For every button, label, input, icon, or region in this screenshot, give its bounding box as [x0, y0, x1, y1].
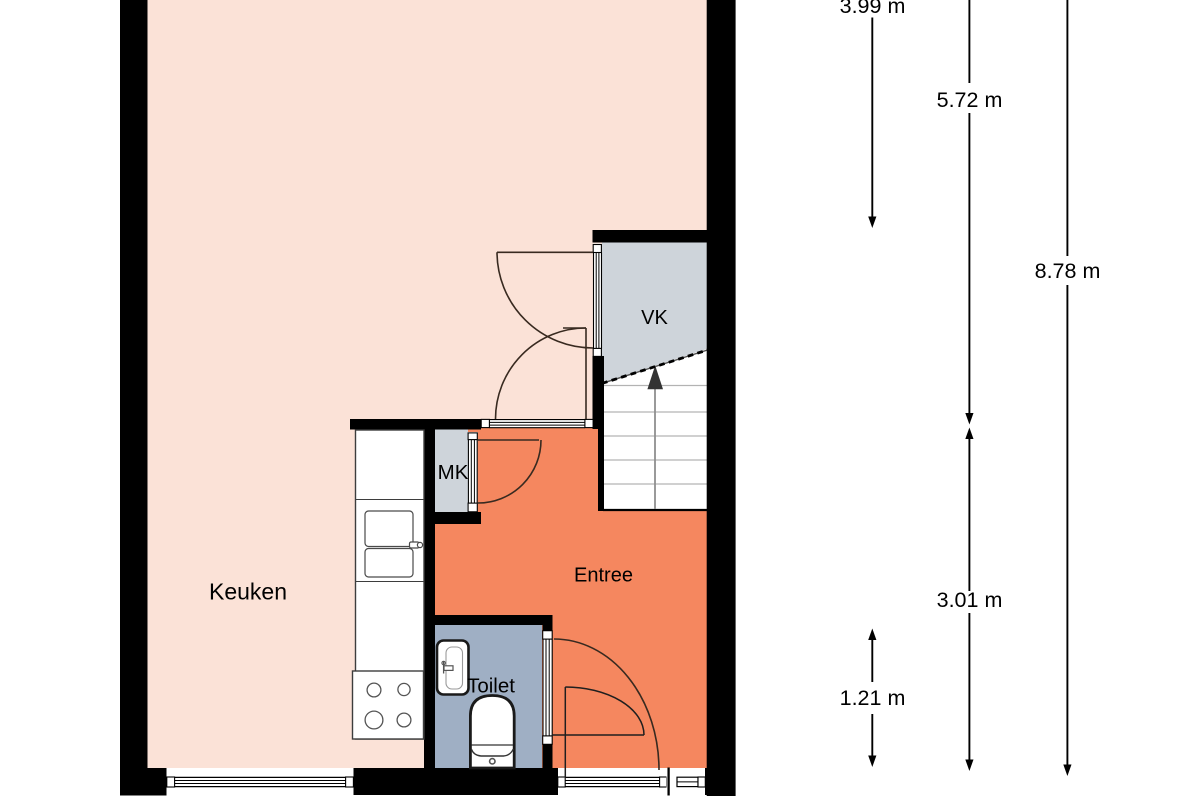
- svg-text:Entree: Entree: [574, 565, 633, 587]
- svg-text:Keuken: Keuken: [209, 579, 287, 605]
- svg-text:VK: VK: [641, 307, 668, 329]
- svg-text:8.78 m: 8.78 m: [1035, 259, 1101, 283]
- svg-text:5.72 m: 5.72 m: [937, 88, 1003, 112]
- svg-text:Toilet: Toilet: [467, 675, 515, 698]
- svg-text:1.21 m: 1.21 m: [840, 686, 906, 710]
- svg-text:3.99 m: 3.99 m: [840, 0, 906, 18]
- svg-text:MK: MK: [438, 461, 469, 484]
- svg-text:3.01 m: 3.01 m: [937, 588, 1003, 612]
